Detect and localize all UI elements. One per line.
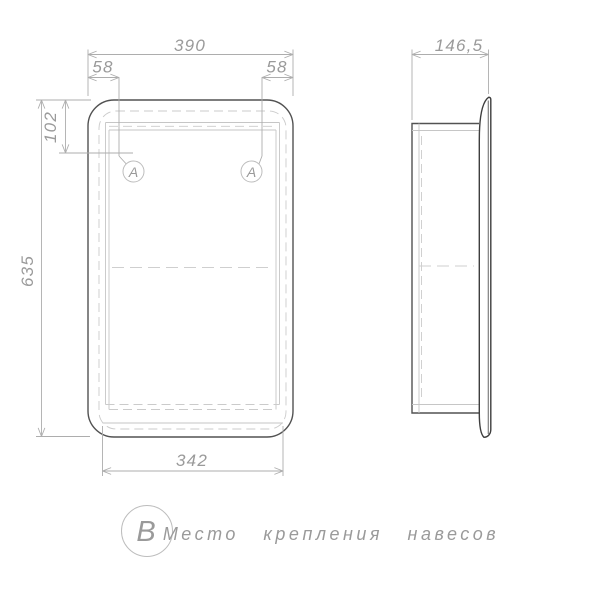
dim-hanger-offset-left: 58 [89,58,119,78]
drawing-canvas: 390 58 58 102 635 342 146,5 А [0,0,600,600]
side-door-profile [479,97,491,437]
dim-bottom-width-value: 342 [176,451,208,470]
dim-hanger-offset-right: 58 [263,58,293,78]
note-text: Место крепления навесов [163,524,499,544]
dim-overall-depth-value: 146,5 [435,36,484,55]
dim-overall-height-value: 635 [18,255,37,287]
side-view [412,97,491,437]
side-body-inner [412,124,479,414]
dim-overall-depth: 146,5 [412,36,489,120]
dim-overall-height: 635 [18,101,90,437]
note: В Место крепления навесов [122,506,500,557]
dim-overall-width-value: 390 [174,36,206,55]
dim-hanger-offset-top-value: 102 [41,111,60,143]
technical-drawing: 390 58 58 102 635 342 146,5 А [0,0,600,600]
side-body-outline [412,124,479,414]
note-marker-label: В [136,516,155,548]
dim-hanger-offset-right-value: 58 [266,58,287,77]
hanger-callout-left-label: А [128,164,138,180]
hanger-callout-right-label: А [246,164,256,180]
dim-hanger-offset-left-value: 58 [92,58,113,77]
